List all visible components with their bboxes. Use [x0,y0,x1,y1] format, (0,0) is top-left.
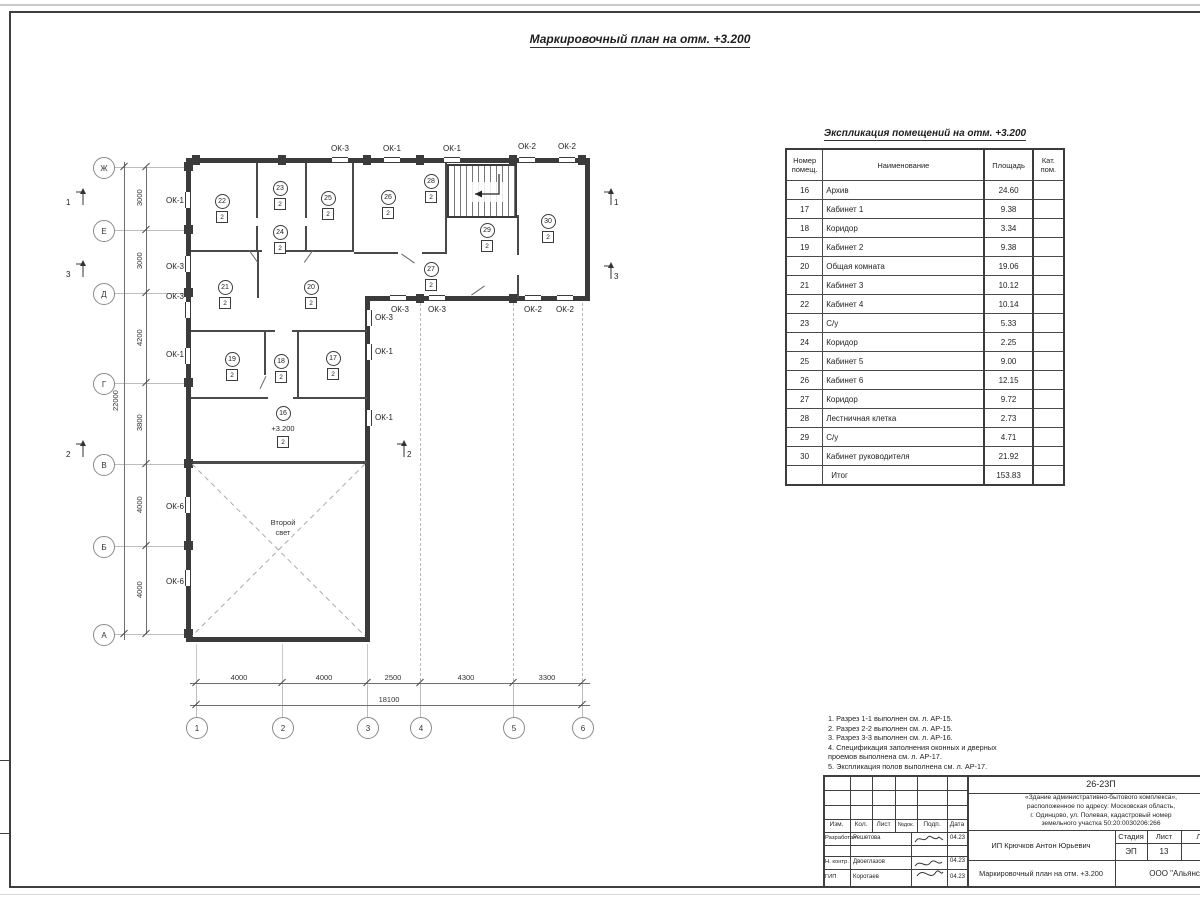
cell-name: Кабинет 6 [823,371,985,390]
cell-name: Кабинет 4 [823,295,985,314]
table-row: 26Кабинет 612.15 [786,371,1064,390]
schedule-header-row: Номер помещ. Наименование Площадь Кат. п… [786,149,1064,181]
table-row: 28Лестничная клетка2.73 [786,409,1064,428]
section-label: 1 [614,198,618,207]
pilaster [363,155,371,165]
wall [191,397,268,399]
col-header-num: Номер помещ. [786,149,823,181]
stamp-line [823,845,968,846]
room-label-16: 16 +3.200 2 [266,406,300,448]
cell-area: 2.25 [984,333,1032,352]
window-mark [185,192,191,208]
dim-value: 2500 [373,673,413,682]
axis-bubble: Е [93,220,115,242]
room-category: 2 [274,242,286,254]
pilaster [184,225,193,234]
section-label: 3 [614,272,618,281]
axis-bubble: Б [93,536,115,558]
pilaster [578,155,586,165]
second-light-label: Второй свет [233,518,333,538]
window-label: ОК-1 [437,144,467,153]
window-label: ОК-2 [512,142,542,151]
stamp-line [823,869,968,870]
note-line: 4. Спецификация заполнения оконных и две… [828,743,997,762]
cell-cat [1033,200,1064,219]
cell-name: Кабинет 5 [823,352,985,371]
cell-num: 26 [786,371,823,390]
room-number: 19 [225,352,240,367]
cell-num: 27 [786,390,823,409]
cell-name: Кабинет 2 [823,238,985,257]
window-label: ОК-3 [375,313,393,322]
room-label: 302 [535,214,561,243]
stamp-name: Решетова [853,835,881,841]
section-label: 3 [66,270,70,279]
wall [292,330,367,332]
window-mark [557,295,573,301]
wall [354,252,398,254]
cell-area: 5.33 [984,314,1032,333]
stamp-date: 04.23 [948,858,967,864]
cell-num: 17 [786,200,823,219]
cell-area: 2.73 [984,409,1032,428]
cell-name: Лестничная клетка [823,409,985,428]
note-line: 3. Разрез 3-3 выполнен см. л. АР-16. [828,733,997,743]
stamp-doc-title: Маркировочный план на отм. +3.200 [967,860,1115,887]
window-label: ОК-1 [152,196,184,205]
drawing-sheet: Маркировочный план на отм. +3.200 [0,0,1200,900]
stamp-line [823,856,968,857]
cell-name: Коридор [823,390,985,409]
axis-bubble: В [93,454,115,476]
room-number: 18 [274,354,289,369]
room-number: 29 [480,223,495,238]
cell-area: 12.15 [984,371,1032,390]
cell-name: Коридор [823,219,985,238]
axis-line [513,686,514,717]
window-mark [366,344,372,360]
room-number: 26 [381,190,396,205]
cell-cat [1033,466,1064,486]
room-category: 2 [327,368,339,380]
cell-cat [1033,295,1064,314]
stamp-col-kol: Кол. [850,821,872,828]
cell-area: 4.71 [984,428,1032,447]
table-row: 27Коридор9.72 [786,390,1064,409]
axis-bubble: 2 [272,717,294,739]
room-number: 16 [276,406,291,421]
stamp-name: Двоеглазов [853,859,885,865]
stamp-line [823,819,968,820]
wall [191,330,275,332]
window-label: ОК-1 [375,413,393,422]
pilaster [416,155,424,165]
window-mark [429,295,445,301]
stamp-line [823,805,968,806]
axis-bubble: Д [93,283,115,305]
axis-line [282,686,283,717]
wall [585,158,590,301]
dimension-line [124,162,125,640]
cell-area: 3.34 [984,219,1032,238]
table-row: 22Кабинет 410.14 [786,295,1064,314]
axis-bubble: 5 [503,717,525,739]
wall [257,252,259,298]
table-row: 16Архив24.60 [786,181,1064,200]
table-row: 24Коридор2.25 [786,333,1064,352]
room-label: 192 [219,352,245,381]
room-category: 2 [481,240,493,252]
frame-margin-tick [0,833,9,834]
room-category: 2 [226,369,238,381]
schedule-title: Экспликация помещений на отм. +3.200 [785,128,1065,141]
window-mark [384,157,400,163]
window-mark [185,497,191,513]
cell-cat [1033,257,1064,276]
cell-num: 22 [786,295,823,314]
window-label: ОК-1 [152,350,184,359]
window-label: ОК-3 [421,305,453,314]
dim-total: 18100 [369,695,409,704]
cell-area: 21.92 [984,447,1032,466]
frame-top [9,11,1200,13]
table-row: 18Коридор3.34 [786,219,1064,238]
table-row: 29С/у4.71 [786,428,1064,447]
stamp-date: 04.23 [948,874,967,880]
room-label: 252 [315,191,341,220]
sheet-title: Маркировочный план на отм. +3.200 [440,32,840,48]
stamp-role: Разработал [825,835,857,841]
wall [517,275,519,298]
room-number: 25 [321,191,336,206]
table-row: 20Общая комната19.06 [786,257,1064,276]
stamp-line [823,775,825,887]
cell-area: 10.14 [984,295,1032,314]
room-label: 182 [268,354,294,383]
dim-value: 4000 [134,487,145,523]
wall [352,163,354,252]
room-category: 2 [425,279,437,291]
room-label: 242 [267,225,293,254]
room-number: 22 [215,194,230,209]
pilaster [184,162,193,171]
stamp-stage-label: Стадия [1115,832,1147,841]
room-label: 212 [212,280,238,309]
cell-name: Коридор [823,333,985,352]
cell-num [786,466,823,486]
room-category: 2 [274,198,286,210]
window-label: ОК-3 [325,144,355,153]
cell-area: 10.12 [984,276,1032,295]
window-mark [519,157,535,163]
stamp-line [823,832,968,833]
dim-value: 4000 [304,673,344,682]
cell-name: С/у [823,314,985,333]
window-mark [525,295,541,301]
col-header-area: Площадь [984,149,1032,181]
room-number: 21 [218,280,233,295]
col-header-cat: Кат. пом. [1033,149,1064,181]
axis-bubble: 6 [572,717,594,739]
note-line: 5. Экспликация полов выполнена см. л. АР… [828,762,997,772]
stamp-description: «Здание административно-бытового комплек… [970,794,1200,829]
pilaster [416,294,424,303]
door-leaf [471,286,485,296]
table-row: 21Кабинет 310.12 [786,276,1064,295]
cell-cat [1033,371,1064,390]
axis-line [420,686,421,717]
stamp-line [947,775,948,887]
cell-cat [1033,314,1064,333]
window-label: ОК-2 [549,305,581,314]
cell-cat [1033,276,1064,295]
window-mark [444,157,460,163]
dim-value: 4000 [134,572,145,608]
pilaster [278,155,286,165]
cell-num: 24 [786,333,823,352]
room-label: 262 [375,190,401,219]
stamp-code: 26-23П [970,779,1200,789]
window-label: ОК-2 [517,305,549,314]
cell-area: 9.00 [984,352,1032,371]
pilaster [184,288,193,297]
section-arrow [76,258,90,278]
schedule-title-text: Экспликация помещений на отм. +3.200 [824,128,1026,141]
wall [422,252,447,254]
axis-bubble: 1 [186,717,208,739]
page-edge-bottom [0,894,1200,895]
door-leaf [260,376,267,389]
note-line: 1. Разрез 1-1 выполнен см. л. АР-15. [828,714,997,724]
window-mark [332,157,348,163]
cell-num: 16 [786,181,823,200]
frame-margin-tick [0,760,9,761]
col-header-name: Наименование [823,149,985,181]
stamp-role: Н. контр. [825,859,849,865]
wall [305,226,307,252]
stamp-col-list: Лист [872,821,895,828]
cell-num: 20 [786,257,823,276]
dim-value: 3300 [527,673,567,682]
cell-num: 25 [786,352,823,371]
stamp-line [1115,843,1200,844]
room-category: 2 [216,211,228,223]
dim-value: 4200 [134,320,145,356]
room-category: 2 [277,436,289,448]
window-mark [390,295,406,301]
cell-name: Архив [823,181,985,200]
stamp-col-data: Дата [947,821,967,828]
room-label: 172 [320,351,346,380]
cell-name: Общая комната [823,257,985,276]
cell-area: 19.06 [984,257,1032,276]
note-line: 2. Разрез 2-2 выполнен см. л. АР-15. [828,724,997,734]
extension-line-dashed [513,303,514,686]
room-number: 23 [273,181,288,196]
window-label: ОК-3 [152,292,184,301]
wall [264,332,266,375]
section-label: 2 [66,450,70,459]
pilaster [509,155,517,165]
room-label: 202 [298,280,324,309]
window-label: ОК-1 [377,144,407,153]
dimension-line [190,683,590,684]
room-category: 2 [382,207,394,219]
frame-left [9,11,11,887]
stamp-org: ООО "Альянс" [1115,860,1200,887]
room-schedule-table: Номер помещ. Наименование Площадь Кат. п… [785,148,1065,486]
wall [517,215,519,255]
cell-num: 21 [786,276,823,295]
stamp-col-izm: Изм. [823,821,850,828]
page-edge-top [0,4,1200,6]
cell-cat [1033,390,1064,409]
stamp-col-podp: Подп. [917,821,947,828]
cell-cat [1033,238,1064,257]
wall [293,397,367,399]
cell-num: 18 [786,219,823,238]
stamp-stage-value: ЭП [1115,847,1147,856]
dim-value: 4000 [219,673,259,682]
window-mark [559,157,575,163]
cell-name: Кабинет 3 [823,276,985,295]
signature [912,856,945,884]
window-label: ОК-6 [152,577,184,586]
cell-area: 24.60 [984,181,1032,200]
axis-bubble: Ж [93,157,115,179]
signature [913,833,945,845]
window-mark [366,410,372,426]
room-number: 24 [273,225,288,240]
pilaster [184,378,193,387]
cell-cat [1033,409,1064,428]
room-label: 282 [418,174,444,203]
table-row: 23С/у5.33 [786,314,1064,333]
cell-name: Кабинет руководителя [823,447,985,466]
room-number: 28 [424,174,439,189]
window-mark [185,256,191,272]
dim-total: 22000 [110,380,121,422]
dimension-line [190,705,590,706]
window-mark [366,310,372,326]
axis-bubble: 3 [357,717,379,739]
cell-num: 23 [786,314,823,333]
stamp-sheets-label: Листов [1181,832,1200,841]
room-label: 272 [418,262,444,291]
dim-value: 3000 [134,243,145,279]
table-row-total: Итог153.83 [786,466,1064,486]
room-category: 2 [219,297,231,309]
wall [256,163,258,218]
room-label: 232 [267,181,293,210]
window-mark [185,348,191,364]
table-row: 19Кабинет 29.38 [786,238,1064,257]
stamp-client: ИП Крючков Антон Юрьевич [967,830,1115,860]
cell-area: 153.83 [984,466,1032,486]
extension-line-dashed [420,303,421,686]
cell-cat [1033,333,1064,352]
table-row: 25Кабинет 59.00 [786,352,1064,371]
stamp-line [823,775,1200,777]
dimension-line [146,167,147,634]
extension-line-dashed [582,303,583,686]
stamp-line [823,790,968,791]
cell-cat [1033,219,1064,238]
sheet-title-text: Маркировочный план на отм. +3.200 [530,32,751,48]
room-number: 27 [424,262,439,277]
second-light-cross [192,464,365,636]
cell-area: 9.38 [984,200,1032,219]
table-row: 17Кабинет 19.38 [786,200,1064,219]
dim-value: 3800 [134,405,145,441]
cell-area: 9.38 [984,238,1032,257]
axis-bubble: А [93,624,115,646]
cell-name: Кабинет 1 [823,200,985,219]
stamp-sheet-value: 13 [1147,847,1181,856]
section-arrow [76,186,90,206]
level-mark: +3.200 [271,424,294,433]
axis-line [367,686,368,717]
cell-cat [1033,428,1064,447]
pilaster [192,155,200,165]
stairs [447,164,517,218]
stamp-role: ГИП [825,874,836,880]
room-number: 20 [304,280,319,295]
dim-value: 3000 [134,180,145,216]
room-category: 2 [425,191,437,203]
cell-num: 28 [786,409,823,428]
window-label: ОК-6 [152,502,184,511]
table-row: 30Кабинет руководителя21.92 [786,447,1064,466]
axis-bubble: 4 [410,717,432,739]
room-category: 2 [322,208,334,220]
window-mark [185,302,191,318]
section-label: 1 [66,198,70,207]
stamp-sheets-value: 17 [1181,847,1200,856]
cell-num: 30 [786,447,823,466]
stamp-date: 04.23 [948,835,967,841]
room-number: 30 [541,214,556,229]
wall [256,226,258,252]
cell-cat [1033,181,1064,200]
wall [305,163,307,218]
window-mark [185,570,191,586]
stair-direction-arrow [449,166,515,216]
room-number: 17 [326,351,341,366]
pilaster [509,294,517,303]
stamp-sheet-label: Лист [1147,832,1181,841]
window-label: ОК-3 [152,262,184,271]
stamp-line [850,775,851,887]
wall [186,637,370,642]
section-label: 2 [407,450,411,459]
room-label: 222 [209,194,235,223]
room-category: 2 [305,297,317,309]
door-leaf [401,254,415,264]
cell-area: 9.72 [984,390,1032,409]
window-label: ОК-1 [375,347,393,356]
cell-num: 19 [786,238,823,257]
stamp-name: Коротаев [853,874,879,880]
room-category: 2 [542,231,554,243]
stamp-col-ndok: №док. [895,822,917,828]
cell-num: 29 [786,428,823,447]
cell-name: Итог [823,466,985,486]
cell-name: С/у [823,428,985,447]
cell-cat [1033,352,1064,371]
section-arrow [76,438,90,458]
cell-cat [1033,447,1064,466]
